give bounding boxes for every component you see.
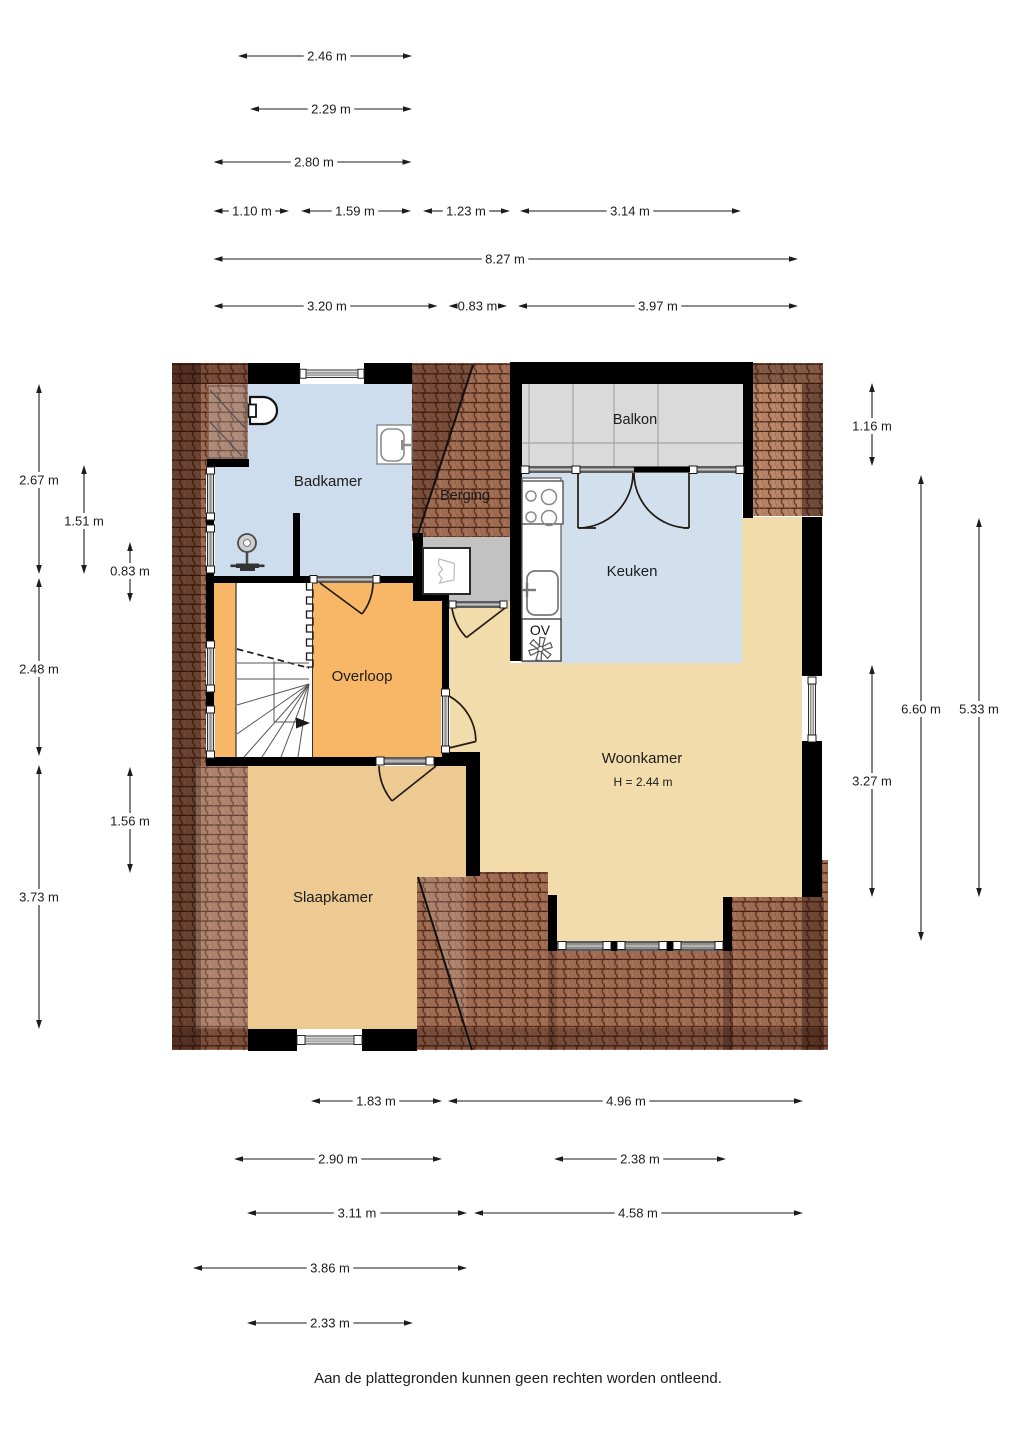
svg-text:1.23 m: 1.23 m: [446, 204, 486, 219]
svg-text:4.96 m: 4.96 m: [606, 1094, 646, 1109]
svg-text:1.83 m: 1.83 m: [356, 1094, 396, 1109]
svg-text:1.51 m: 1.51 m: [64, 514, 104, 529]
svg-text:Keuken: Keuken: [607, 563, 658, 580]
svg-text:2.67 m: 2.67 m: [19, 473, 59, 488]
svg-text:2.38 m: 2.38 m: [620, 1152, 660, 1167]
svg-text:1.16 m: 1.16 m: [852, 419, 892, 434]
svg-text:3.86 m: 3.86 m: [310, 1261, 350, 1276]
svg-text:Slaapkamer: Slaapkamer: [293, 889, 373, 906]
svg-text:Woonkamer: Woonkamer: [602, 750, 683, 767]
svg-text:1.10 m: 1.10 m: [232, 204, 272, 219]
svg-text:1.59 m: 1.59 m: [335, 204, 375, 219]
svg-text:OV: OV: [530, 622, 551, 638]
svg-text:5.33 m: 5.33 m: [959, 702, 999, 717]
svg-text:0.83 m: 0.83 m: [110, 564, 150, 579]
svg-text:2.90 m: 2.90 m: [318, 1152, 358, 1167]
svg-text:3.11 m: 3.11 m: [338, 1206, 377, 1221]
svg-text:0.83 m: 0.83 m: [458, 299, 498, 314]
svg-text:3.73 m: 3.73 m: [19, 890, 59, 905]
svg-text:3.27 m: 3.27 m: [852, 774, 892, 789]
svg-text:4.58 m: 4.58 m: [618, 1206, 658, 1221]
svg-text:Berging: Berging: [440, 488, 490, 504]
svg-text:2.33 m: 2.33 m: [310, 1316, 350, 1331]
svg-text:Aan de plattegronden kunnen ge: Aan de plattegronden kunnen geen rechten…: [314, 1370, 722, 1387]
svg-text:1.56 m: 1.56 m: [110, 814, 150, 829]
svg-text:H = 2.44 m: H = 2.44 m: [613, 775, 672, 789]
svg-text:Balkon: Balkon: [613, 412, 657, 428]
svg-text:3.14 m: 3.14 m: [610, 204, 650, 219]
svg-text:8.27 m: 8.27 m: [485, 252, 525, 267]
svg-text:Badkamer: Badkamer: [294, 473, 362, 490]
svg-text:2.46 m: 2.46 m: [307, 49, 347, 64]
svg-text:6.60 m: 6.60 m: [901, 702, 941, 717]
svg-text:3.20 m: 3.20 m: [307, 299, 347, 314]
svg-text:2.80 m: 2.80 m: [294, 155, 334, 170]
svg-text:Overloop: Overloop: [332, 668, 393, 685]
svg-text:2.48 m: 2.48 m: [19, 662, 59, 677]
svg-text:2.29 m: 2.29 m: [311, 102, 351, 117]
svg-text:3.97 m: 3.97 m: [638, 299, 678, 314]
